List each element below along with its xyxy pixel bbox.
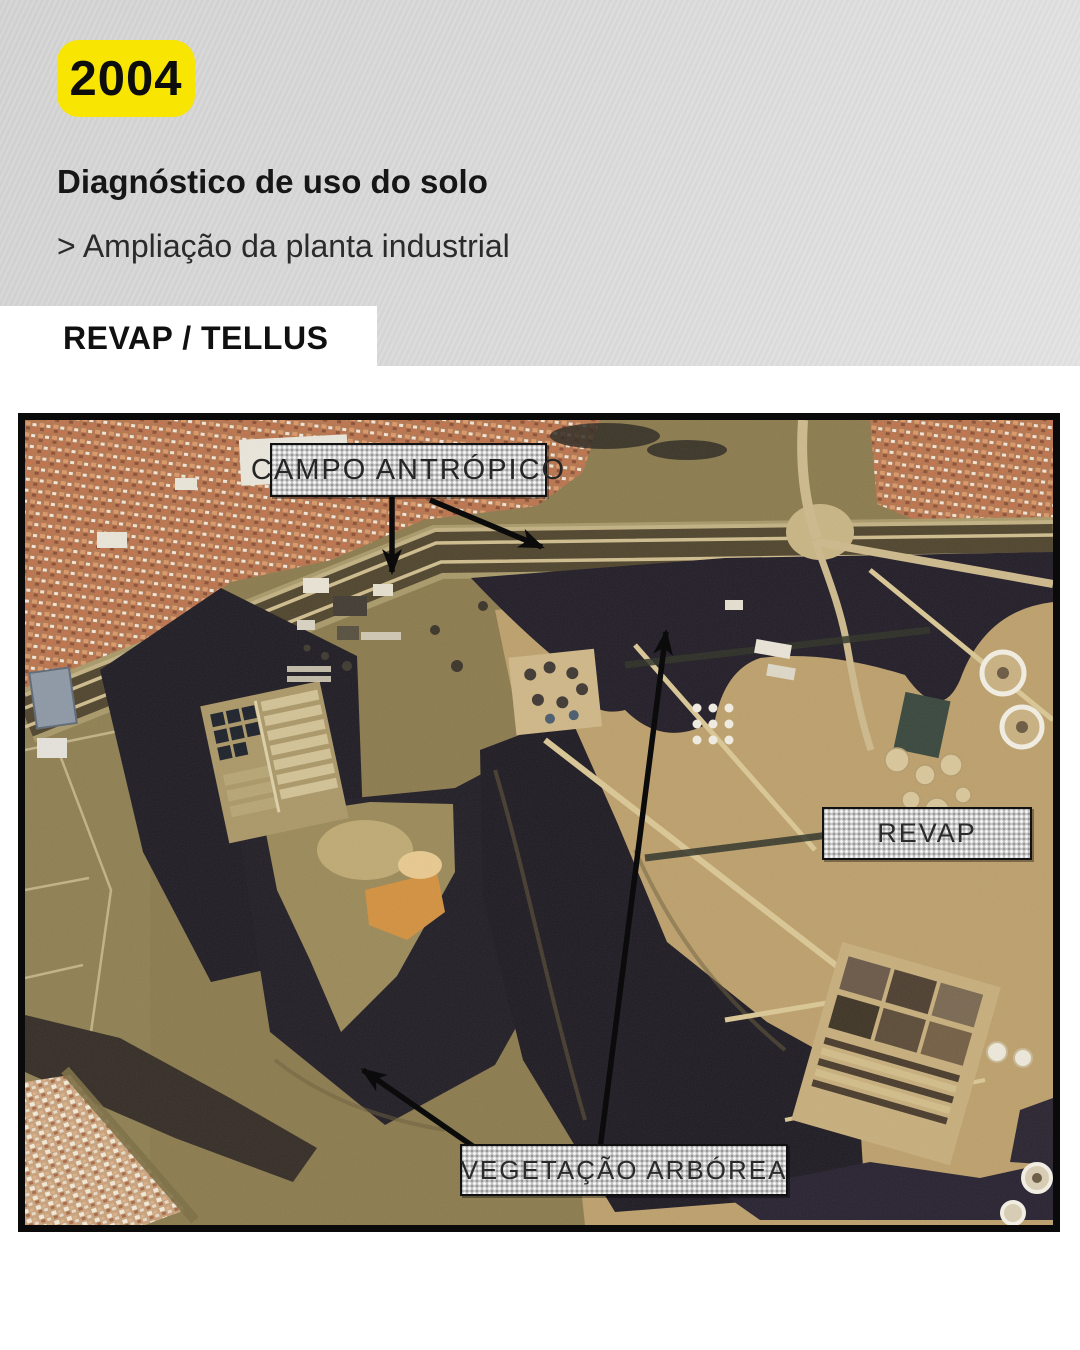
year-badge-text: 2004: [69, 51, 182, 107]
year-badge: 2004: [57, 40, 195, 117]
map-label-vegetacao-arborea: VEGETAÇÃO ARBÓREA: [460, 1144, 788, 1196]
page-title: Diagnóstico de uso do solo: [57, 163, 488, 201]
source-tab-text: REVAP / TELLUS: [63, 320, 328, 357]
aerial-photo-frame: CAMPO ANTRÓPICO REVAP VEGETAÇÃO ARBÓREA: [18, 413, 1060, 1232]
page-subtitle: > Ampliação da planta industrial: [57, 228, 510, 265]
aerial-photo: CAMPO ANTRÓPICO REVAP VEGETAÇÃO ARBÓREA: [25, 420, 1053, 1225]
source-tab: REVAP / TELLUS: [0, 306, 377, 370]
map-label-revap: REVAP: [822, 807, 1032, 860]
map-label-campo-antropico: CAMPO ANTRÓPICO: [270, 443, 547, 497]
slide-root: 2004 Diagnóstico de uso do solo > Amplia…: [0, 0, 1080, 1350]
